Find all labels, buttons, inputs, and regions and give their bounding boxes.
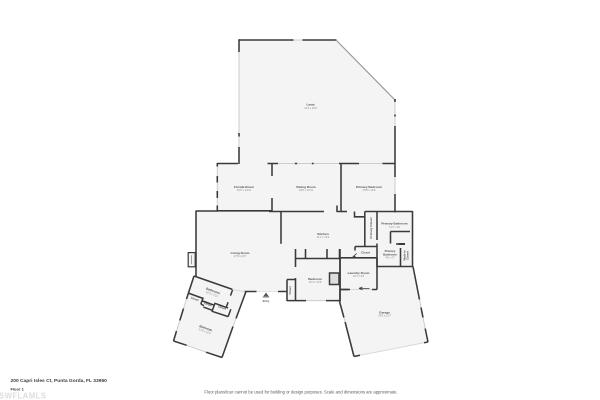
svg-text:Bathroom: Bathroom <box>383 252 397 256</box>
svg-text:13'4 x 12'6: 13'4 x 12'6 <box>309 280 322 284</box>
svg-text:Florida Room: Florida Room <box>234 185 254 189</box>
svg-text:16'5 x 13'11: 16'5 x 13'11 <box>237 188 252 192</box>
svg-text:Laundry Room: Laundry Room <box>348 271 370 275</box>
svg-text:Bedroom: Bedroom <box>308 277 322 281</box>
svg-text:Floor plans/tour cannot be use: Floor plans/tour cannot be used for buil… <box>204 389 397 394</box>
svg-text:17'8 x 22'7: 17'8 x 22'7 <box>234 254 247 258</box>
svg-text:SWFLAMLS: SWFLAMLS <box>0 391 46 400</box>
svg-text:41'4 x 24'0: 41'4 x 24'0 <box>304 106 317 110</box>
svg-text:Primary Closet: Primary Closet <box>369 217 373 238</box>
svg-text:4'5 x 4'7: 4'5 x 4'7 <box>385 256 395 260</box>
svg-text:Dining Room: Dining Room <box>296 185 315 189</box>
svg-text:Lanai: Lanai <box>306 103 314 107</box>
svg-text:Primary Bathroom: Primary Bathroom <box>381 222 408 226</box>
svg-text:11'2 x 13'9: 11'2 x 13'9 <box>317 235 330 239</box>
svg-text:10'7 x 9'5: 10'7 x 9'5 <box>353 274 365 278</box>
svg-text:Closet: Closet <box>361 250 370 254</box>
svg-text:200 Capri Isles Ct, Punta Gord: 200 Capri Isles Ct, Punta Gorda, FL 3395… <box>11 378 108 384</box>
svg-text:11'1 x 3'4: 11'1 x 3'4 <box>389 225 400 229</box>
svg-text:Living Room: Living Room <box>231 251 250 255</box>
svg-text:19'5 x 13'11: 19'5 x 13'11 <box>299 188 314 192</box>
svg-text:15'8 x 13'9: 15'8 x 13'9 <box>363 188 376 192</box>
svg-text:Closet: Closet <box>288 286 292 294</box>
svg-text:Primary Bedroom: Primary Bedroom <box>356 185 382 189</box>
svg-text:Garage: Garage <box>379 310 390 314</box>
svg-text:24'5 x 22'7: 24'5 x 22'7 <box>378 314 391 318</box>
svg-text:Closet: Closet <box>405 251 409 260</box>
svg-text:Entry: Entry <box>263 299 270 303</box>
svg-text:Kitchen: Kitchen <box>317 232 328 236</box>
